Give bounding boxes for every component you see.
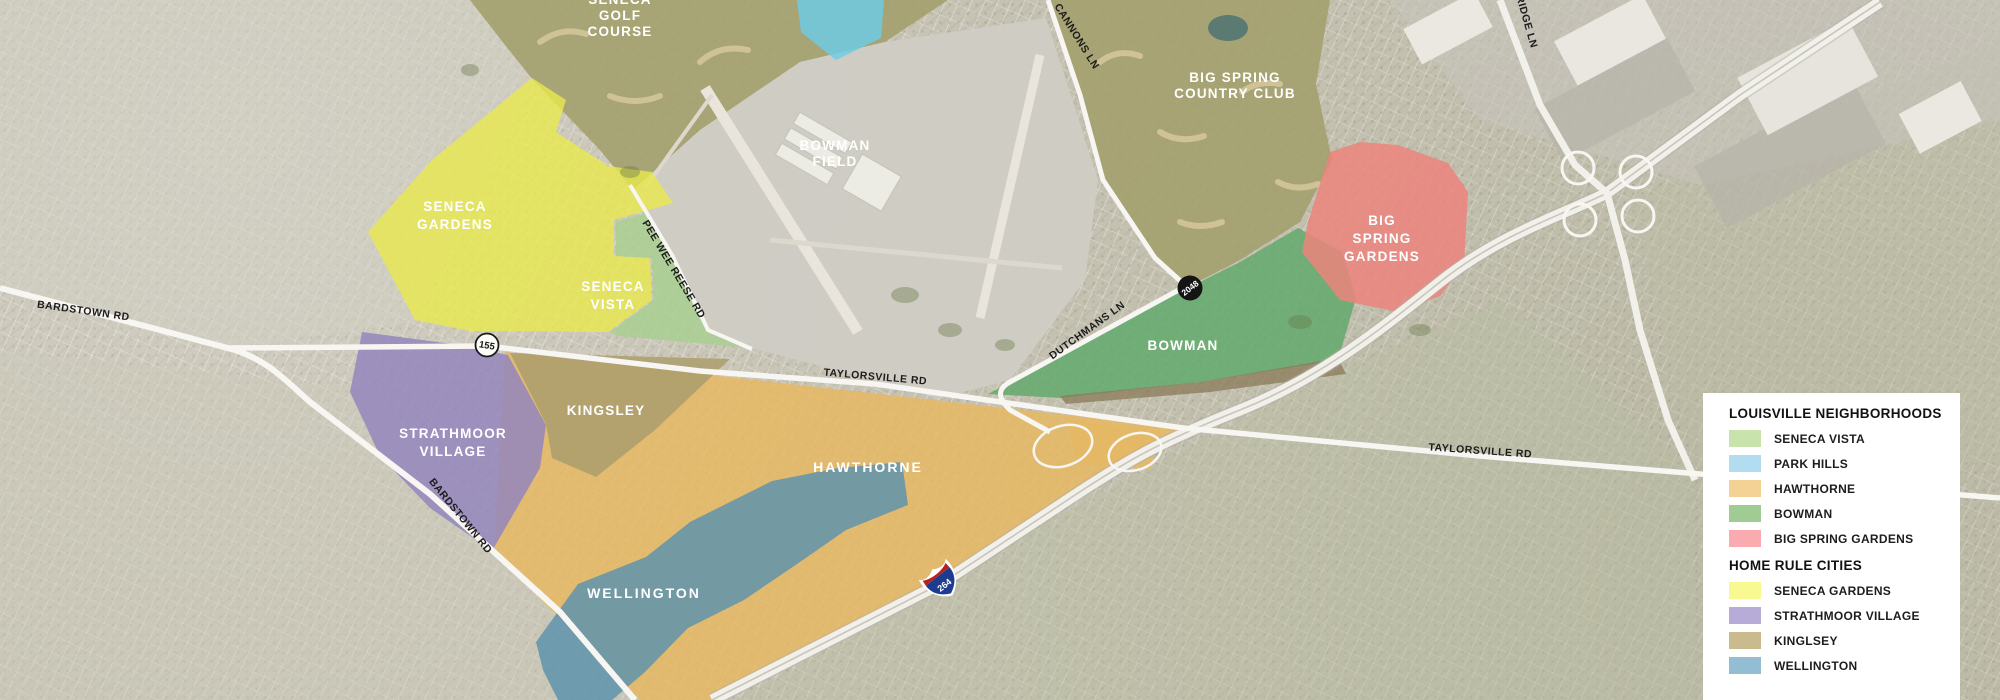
golf-course-lake [1208, 15, 1248, 41]
legend-label: HAWTHORNE [1774, 482, 1855, 496]
svg-text:GARDENS: GARDENS [1344, 249, 1420, 264]
seneca-golf-course-label: SENECA [588, 0, 651, 7]
kingsley-label: KINGSLEY [567, 403, 646, 418]
legend-swatch-seneca-gardens [1729, 582, 1761, 599]
svg-text:COURSE: COURSE [588, 24, 653, 39]
legend-label: SENECA GARDENS [1774, 584, 1891, 598]
legend-swatch-bowman [1729, 505, 1761, 522]
legend-label: STRATHMOOR VILLAGE [1774, 609, 1920, 623]
legend-item-hawthorne: HAWTHORNE [1729, 480, 1960, 497]
legend-swatch-seneca-vista [1729, 430, 1761, 447]
map-canvas: SENECA GOLF COURSE BOWMAN FIELD BIG SPRI… [0, 0, 2000, 700]
hawthorne-label: HAWTHORNE [813, 459, 923, 475]
legend-label: SENECA VISTA [1774, 432, 1865, 446]
strathmoor-village-label: STRATHMOOR [399, 426, 507, 441]
legend-swatch-hawthorne [1729, 480, 1761, 497]
legend-label: PARK HILLS [1774, 457, 1848, 471]
legend-item-big-spring-gardens: BIG SPRING GARDENS [1729, 530, 1960, 547]
svg-text:GOLF: GOLF [599, 8, 641, 23]
legend-swatch-strathmoor-village [1729, 607, 1761, 624]
big-spring-gardens-label: BIG [1368, 213, 1396, 228]
route-155-shield: 155 [476, 334, 499, 357]
legend-item-wellington: WELLINGTON [1729, 657, 1960, 674]
legend-swatch-park-hills [1729, 455, 1761, 472]
legend-label: KINGLSEY [1774, 634, 1838, 648]
map-screenshot: SENECA GOLF COURSE BOWMAN FIELD BIG SPRI… [0, 0, 2000, 700]
legend-label: BIG SPRING GARDENS [1774, 532, 1913, 546]
legend-swatch-wellington [1729, 657, 1761, 674]
wellington-label: WELLINGTON [587, 585, 701, 601]
bowman-field-label: BOWMAN [800, 138, 871, 153]
legend-item-kinglsey: KINGLSEY [1729, 632, 1960, 649]
legend-title-neighborhoods: LOUISVILLE NEIGHBORHOODS [1729, 406, 1960, 421]
legend-item-bowman: BOWMAN [1729, 505, 1960, 522]
svg-text:VILLAGE: VILLAGE [420, 444, 487, 459]
legend-item-seneca-gardens: SENECA GARDENS [1729, 582, 1960, 599]
svg-text:VISTA: VISTA [591, 297, 636, 312]
legend-label: BOWMAN [1774, 507, 1832, 521]
legend-item-park-hills: PARK HILLS [1729, 455, 1960, 472]
legend-item-strathmoor-village: STRATHMOOR VILLAGE [1729, 607, 1960, 624]
svg-text:FIELD: FIELD [813, 154, 858, 169]
big-spring-country-club-label: BIG SPRING [1189, 70, 1281, 85]
legend-label: WELLINGTON [1774, 659, 1857, 673]
bowman-label: BOWMAN [1148, 338, 1219, 353]
legend-item-seneca-vista: SENECA VISTA [1729, 430, 1960, 447]
seneca-vista-label: SENECA [581, 279, 644, 294]
svg-text:SPRING: SPRING [1353, 231, 1412, 246]
seneca-gardens-label: SENECA [423, 199, 486, 214]
svg-text:COUNTRY CLUB: COUNTRY CLUB [1174, 86, 1296, 101]
legend-swatch-big-spring-gardens [1729, 530, 1761, 547]
map-legend: LOUISVILLE NEIGHBORHOODS SENECA VISTA PA… [1703, 393, 1960, 700]
svg-text:GARDENS: GARDENS [417, 217, 493, 232]
legend-swatch-kinglsey [1729, 632, 1761, 649]
legend-title-home-rule-cities: HOME RULE CITIES [1729, 558, 1960, 573]
